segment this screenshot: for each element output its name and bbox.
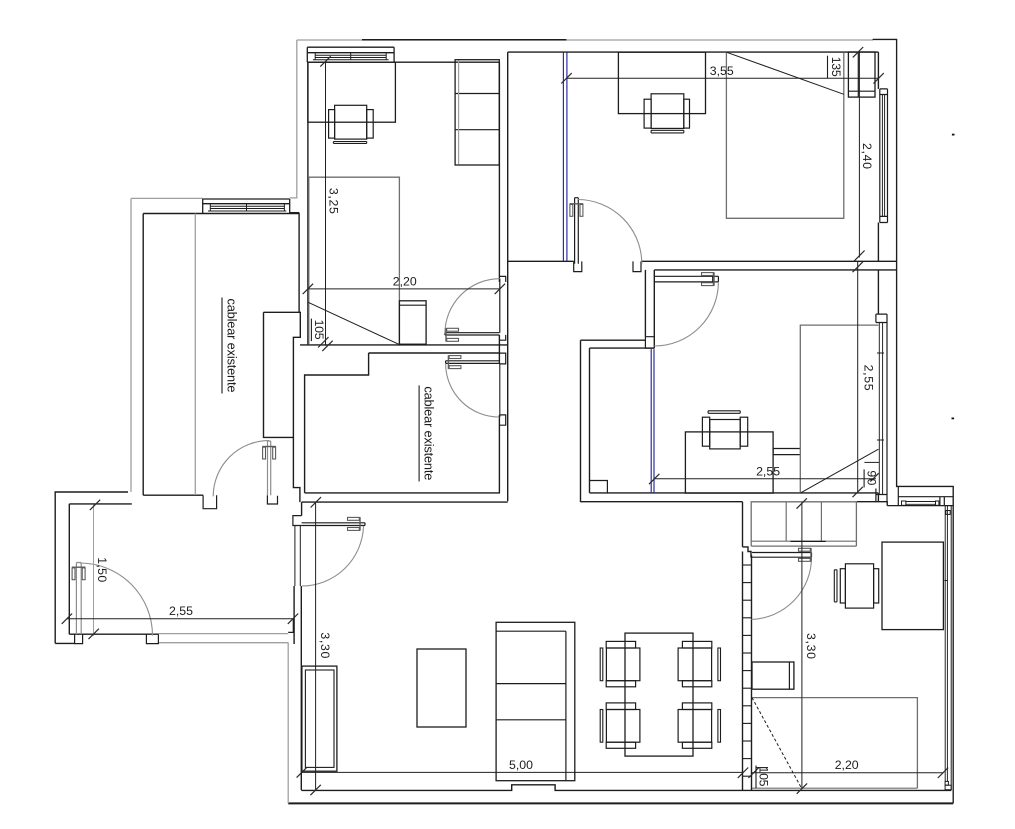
svg-text:90: 90: [865, 470, 879, 485]
svg-text:105: 105: [312, 320, 326, 340]
svg-text:2,55: 2,55: [169, 604, 193, 618]
svg-text:3,30: 3,30: [804, 633, 818, 659]
svg-text:3,55: 3,55: [710, 64, 734, 78]
svg-text:2,55: 2,55: [756, 465, 780, 479]
svg-text:3,30: 3,30: [318, 632, 332, 658]
svg-text:5,00: 5,00: [509, 758, 533, 772]
svg-text:2,20: 2,20: [393, 274, 417, 288]
svg-text:2,55: 2,55: [862, 365, 876, 391]
svg-text:2,40: 2,40: [860, 143, 874, 169]
svg-text:1,50: 1,50: [95, 557, 109, 582]
svg-text:cablear existente: cablear existente: [225, 299, 240, 393]
svg-text:135: 135: [829, 57, 843, 77]
svg-text:cablear existente: cablear existente: [422, 386, 437, 480]
svg-text:2,20: 2,20: [835, 758, 859, 772]
svg-text:3,25: 3,25: [327, 188, 341, 214]
svg-text:105: 105: [756, 767, 770, 787]
